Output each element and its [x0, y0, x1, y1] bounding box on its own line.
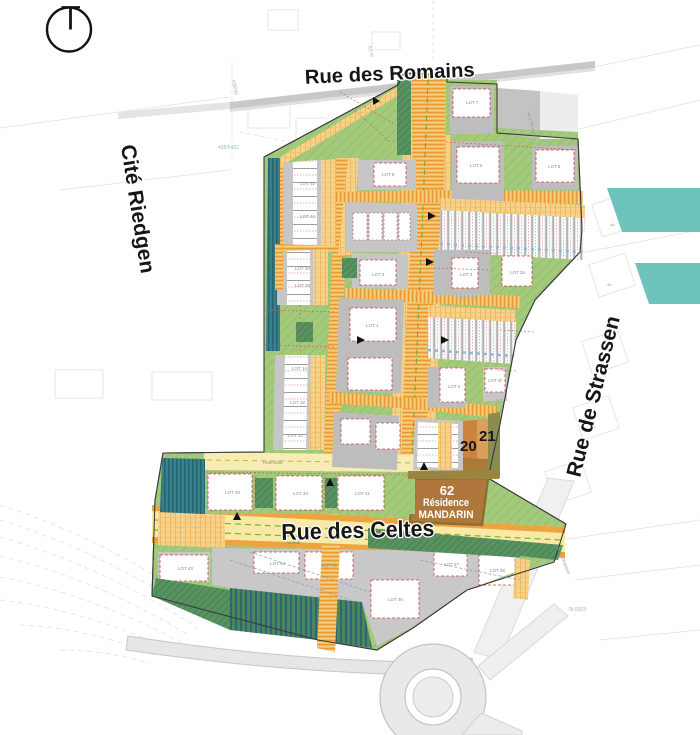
svg-text:Résidence: Résidence: [423, 497, 469, 509]
svg-text:MANDARIN: MANDARIN: [419, 509, 474, 521]
svg-text:62: 62: [440, 483, 454, 498]
svg-text:LOT 44: LOT 44: [300, 214, 315, 219]
svg-text:LOT 12: LOT 12: [288, 433, 303, 438]
svg-text:4a: 4a: [610, 222, 615, 227]
svg-text:LOT 4: LOT 4: [460, 272, 473, 277]
svg-text:Rue des Celtes: Rue des Celtes: [281, 515, 435, 545]
svg-text:LOT 3: LOT 3: [372, 272, 385, 277]
svg-text:HAB-2045: HAB-2045: [263, 460, 283, 465]
svg-text:LOT 5: LOT 5: [548, 164, 561, 169]
svg-text:LOT 8: LOT 8: [382, 172, 395, 177]
svg-text:LOT 3a: LOT 3a: [510, 270, 525, 275]
svg-text:LOT 7: LOT 7: [466, 100, 479, 105]
svg-text:LOT 43: LOT 43: [178, 566, 193, 571]
svg-text:7b,5923: 7b,5923: [568, 607, 586, 613]
svg-text:LOT 14: LOT 14: [292, 366, 307, 371]
svg-text:LOT 39: LOT 39: [225, 490, 240, 495]
svg-text:LOT 6: LOT 6: [470, 163, 483, 168]
svg-text:LOT 40: LOT 40: [293, 491, 308, 496]
svg-text:LOT 29: LOT 29: [295, 283, 310, 288]
svg-text:4b: 4b: [607, 282, 612, 287]
svg-text:LOT 45: LOT 45: [300, 181, 315, 186]
svg-text:LOT 48: LOT 48: [490, 568, 505, 573]
svg-text:LOT 2: LOT 2: [448, 384, 461, 389]
svg-text:LOT 41: LOT 41: [355, 491, 370, 496]
svg-text:LOT 3f: LOT 3f: [488, 378, 502, 383]
svg-text:LOT 45: LOT 45: [322, 563, 337, 568]
svg-text:LOT 46: LOT 46: [388, 597, 403, 602]
svg-text:LOT 44: LOT 44: [270, 561, 285, 566]
svg-text:438/5432: 438/5432: [455, 296, 476, 302]
svg-text:LOT 47: LOT 47: [444, 562, 459, 567]
svg-text:LOT 30: LOT 30: [295, 266, 310, 271]
svg-text:20: 20: [460, 438, 477, 455]
svg-text:LOT 18: LOT 18: [290, 400, 305, 405]
svg-text:438/5432: 438/5432: [218, 145, 239, 151]
svg-text:LOT 1: LOT 1: [366, 323, 379, 328]
svg-text:21: 21: [479, 428, 496, 445]
